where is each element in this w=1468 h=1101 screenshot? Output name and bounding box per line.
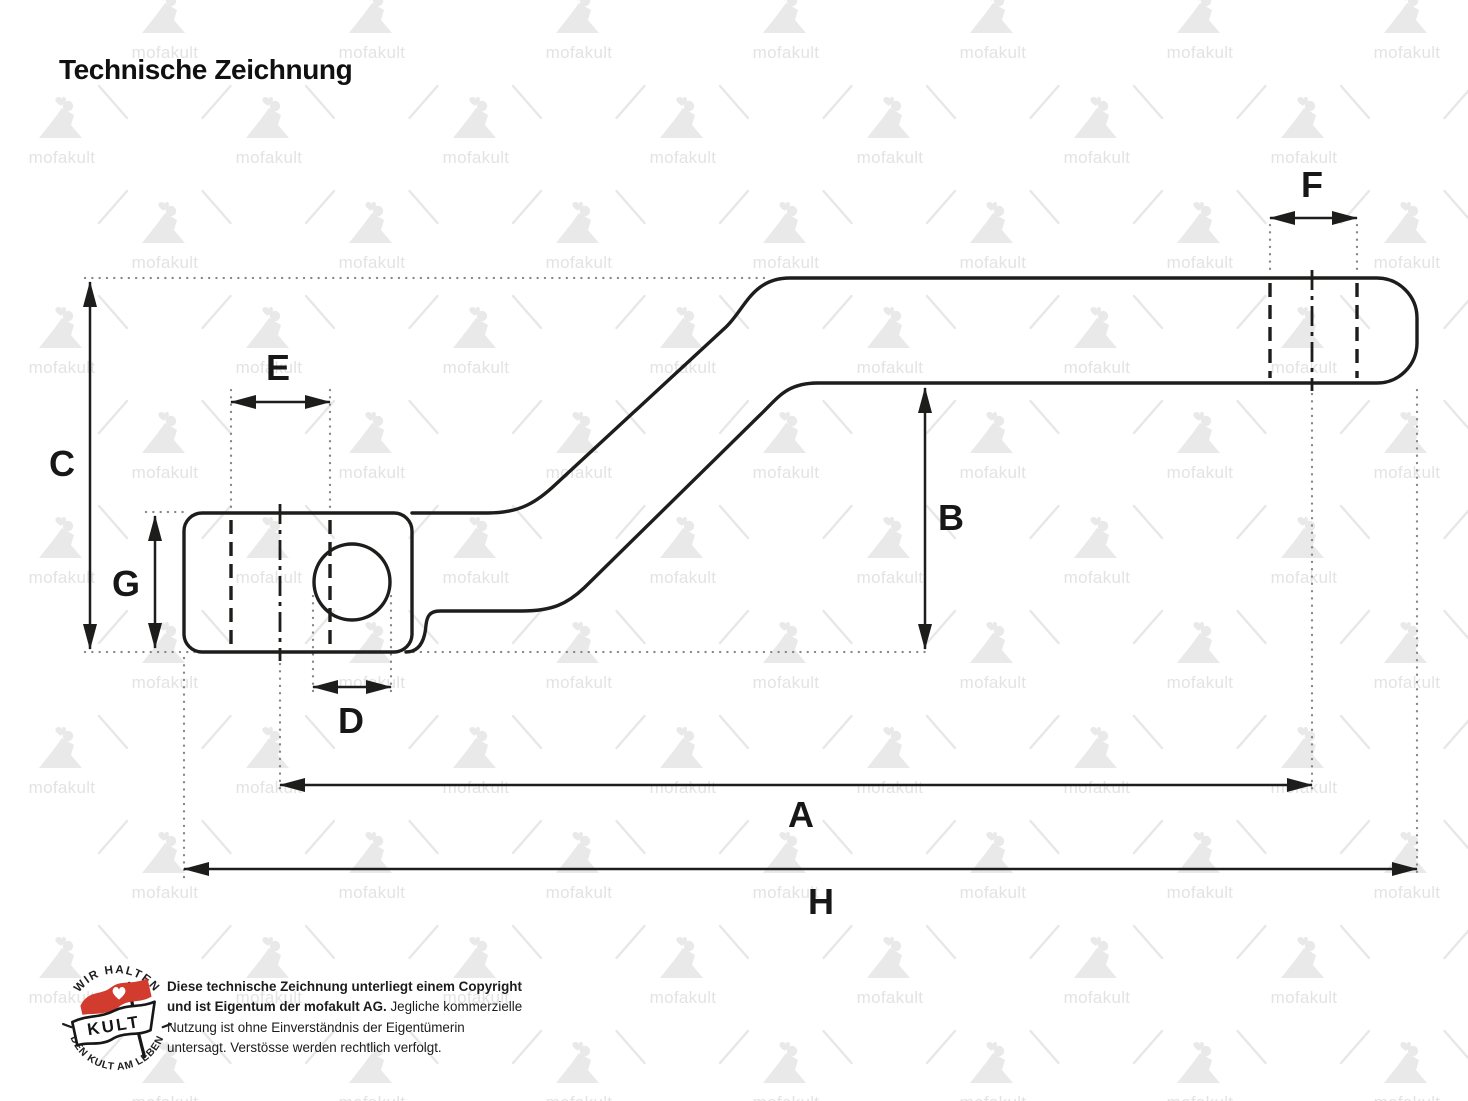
watermark-slash bbox=[1238, 611, 1266, 643]
watermark-text: mofakult bbox=[1271, 778, 1338, 797]
watermark-glyph bbox=[39, 517, 82, 558]
watermark-slash bbox=[1238, 191, 1266, 223]
watermark-text: mofakult bbox=[546, 463, 613, 482]
watermark-slash bbox=[513, 611, 541, 643]
watermark-slash bbox=[203, 506, 231, 538]
watermark-slash bbox=[1341, 401, 1369, 433]
watermark-glyph bbox=[39, 97, 82, 138]
watermark-text: mofakult bbox=[546, 43, 613, 62]
watermark-glyph bbox=[246, 937, 289, 978]
watermark-slash bbox=[1031, 191, 1059, 223]
watermark-text: mofakult bbox=[1167, 883, 1234, 902]
watermark-slash bbox=[99, 86, 127, 118]
watermark-text: mofakult bbox=[1374, 1093, 1441, 1101]
watermark-glyph bbox=[763, 622, 806, 663]
watermark-slash bbox=[1031, 1031, 1059, 1063]
watermark-glyph bbox=[970, 622, 1013, 663]
watermark-slash bbox=[306, 926, 334, 958]
watermark-slash bbox=[1445, 1031, 1468, 1063]
clamp-bolt-hole bbox=[314, 544, 390, 620]
watermark-glyph bbox=[970, 832, 1013, 873]
watermark-slash bbox=[203, 611, 231, 643]
watermark-glyph bbox=[1074, 937, 1117, 978]
watermark-slash bbox=[306, 821, 334, 853]
watermark-glyph bbox=[1281, 517, 1324, 558]
watermark-text: mofakult bbox=[650, 568, 717, 587]
watermark-slash bbox=[1445, 86, 1468, 118]
dimension-label-e: E bbox=[266, 347, 290, 388]
watermark-slash bbox=[513, 821, 541, 853]
watermark-glyph bbox=[1177, 832, 1220, 873]
watermark-slash bbox=[1341, 611, 1369, 643]
watermark-slash bbox=[927, 611, 955, 643]
watermark-text: mofakult bbox=[650, 148, 717, 167]
watermark-glyph bbox=[1281, 727, 1324, 768]
watermark-slash bbox=[1238, 506, 1266, 538]
watermark-slash bbox=[1031, 926, 1059, 958]
watermark-slash bbox=[824, 611, 852, 643]
watermark-slash bbox=[513, 401, 541, 433]
watermark-text: mofakult bbox=[1167, 253, 1234, 272]
watermark-glyph bbox=[1177, 1042, 1220, 1083]
watermark-slash bbox=[1134, 191, 1162, 223]
watermark-text: mofakult bbox=[29, 148, 96, 167]
watermark-slash bbox=[1445, 296, 1468, 328]
page-title: Technische Zeichnung bbox=[59, 54, 352, 86]
watermark-slash bbox=[513, 926, 541, 958]
watermark-glyph bbox=[453, 727, 496, 768]
watermark-slash bbox=[513, 86, 541, 118]
watermark-glyph bbox=[1074, 97, 1117, 138]
watermark-glyph bbox=[246, 727, 289, 768]
watermark-slash bbox=[99, 821, 127, 853]
watermark-text: mofakult bbox=[857, 568, 924, 587]
watermark-slash bbox=[99, 716, 127, 748]
watermark-slash bbox=[203, 716, 231, 748]
watermark-text: mofakult bbox=[546, 673, 613, 692]
watermark-slash bbox=[1445, 506, 1468, 538]
watermark-glyph bbox=[1384, 202, 1427, 243]
watermark-glyph bbox=[453, 517, 496, 558]
watermark-glyph bbox=[867, 517, 910, 558]
watermark-slash bbox=[1134, 1031, 1162, 1063]
dimension-label-f: F bbox=[1301, 164, 1323, 205]
watermark-slash bbox=[720, 191, 748, 223]
watermark-glyph bbox=[763, 412, 806, 453]
watermark-text: mofakult bbox=[339, 883, 406, 902]
watermark-text: mofakult bbox=[753, 43, 820, 62]
watermark-slash bbox=[1238, 926, 1266, 958]
watermark-slash bbox=[824, 296, 852, 328]
watermark-glyph bbox=[1177, 0, 1220, 33]
watermark-glyph bbox=[970, 412, 1013, 453]
watermark-slash bbox=[99, 191, 127, 223]
watermark-slash bbox=[824, 716, 852, 748]
watermark-text: mofakult bbox=[1374, 883, 1441, 902]
watermark-slash bbox=[1238, 821, 1266, 853]
watermark-slash bbox=[617, 296, 645, 328]
watermark-text: mofakult bbox=[960, 43, 1027, 62]
watermark-slash bbox=[513, 716, 541, 748]
watermark-glyph bbox=[349, 202, 392, 243]
watermark-slash bbox=[1445, 191, 1468, 223]
watermark-glyph bbox=[349, 0, 392, 33]
watermark-slash bbox=[1238, 716, 1266, 748]
watermark-text: mofakult bbox=[29, 358, 96, 377]
watermark-glyph bbox=[1384, 1042, 1427, 1083]
watermark-glyph bbox=[349, 412, 392, 453]
watermark-glyph bbox=[1074, 517, 1117, 558]
watermark-slash bbox=[927, 926, 955, 958]
watermark-text: mofakult bbox=[960, 463, 1027, 482]
dimension-label-b: B bbox=[938, 497, 964, 538]
watermark-slash bbox=[720, 296, 748, 328]
watermark-slash bbox=[1445, 716, 1468, 748]
watermark-text: mofakult bbox=[132, 673, 199, 692]
watermark-text: mofakult bbox=[1064, 148, 1131, 167]
watermark-glyph bbox=[1281, 937, 1324, 978]
watermark-glyph bbox=[556, 0, 599, 33]
watermark-slash bbox=[1031, 716, 1059, 748]
watermark-glyph bbox=[660, 307, 703, 348]
watermark-slash bbox=[410, 821, 438, 853]
watermark-slash bbox=[720, 401, 748, 433]
watermark-slash bbox=[410, 191, 438, 223]
watermark-text: mofakult bbox=[857, 988, 924, 1007]
watermark-glyph bbox=[1384, 0, 1427, 33]
watermark-text: mofakult bbox=[1064, 358, 1131, 377]
watermark-glyph bbox=[1281, 97, 1324, 138]
watermark-text: mofakult bbox=[1374, 43, 1441, 62]
watermark-glyph bbox=[970, 1042, 1013, 1083]
watermark-text: mofakult bbox=[1374, 253, 1441, 272]
watermark-slash bbox=[513, 296, 541, 328]
watermark-slash bbox=[824, 191, 852, 223]
watermark-slash bbox=[927, 716, 955, 748]
watermark-glyph bbox=[246, 97, 289, 138]
watermark-glyph bbox=[39, 727, 82, 768]
watermark-slash bbox=[617, 86, 645, 118]
watermark-glyph bbox=[763, 832, 806, 873]
watermark-slash bbox=[203, 401, 231, 433]
watermark-slash bbox=[99, 611, 127, 643]
watermark-slash bbox=[1134, 506, 1162, 538]
watermark-text: mofakult bbox=[236, 148, 303, 167]
technical-drawing-page: mofakultmofakultmofakultmofakultmofakult… bbox=[0, 0, 1468, 1101]
watermark-text: mofakult bbox=[960, 673, 1027, 692]
watermark-text: mofakult bbox=[132, 253, 199, 272]
watermark-slash bbox=[1031, 86, 1059, 118]
watermark-slash bbox=[824, 401, 852, 433]
watermark-text: mofakult bbox=[857, 358, 924, 377]
watermark-slash bbox=[99, 926, 127, 958]
watermark-glyph bbox=[453, 937, 496, 978]
watermark-glyph bbox=[556, 412, 599, 453]
watermark-text: mofakult bbox=[1064, 568, 1131, 587]
watermark-slash bbox=[203, 821, 231, 853]
watermark-glyph bbox=[660, 517, 703, 558]
dimension-label-c: C bbox=[49, 443, 75, 484]
watermark-slash bbox=[513, 506, 541, 538]
watermark-slash bbox=[1341, 716, 1369, 748]
watermark-glyph bbox=[556, 1042, 599, 1083]
watermark-slash bbox=[306, 86, 334, 118]
watermark-glyph bbox=[349, 832, 392, 873]
watermark-glyph bbox=[1177, 412, 1220, 453]
watermark-slash bbox=[306, 716, 334, 748]
watermark-slash bbox=[1341, 821, 1369, 853]
watermark-slash bbox=[1134, 821, 1162, 853]
watermark-text: mofakult bbox=[650, 778, 717, 797]
watermark-slash bbox=[927, 191, 955, 223]
watermark-slash bbox=[1238, 1031, 1266, 1063]
watermark-slash bbox=[1031, 821, 1059, 853]
watermark-text: mofakult bbox=[443, 358, 510, 377]
watermark-slash bbox=[1445, 926, 1468, 958]
copyright-notice: Diese technische Zeichnung unterliegt ei… bbox=[167, 977, 525, 1059]
watermark-slash bbox=[927, 1031, 955, 1063]
watermark-glyph bbox=[867, 307, 910, 348]
watermark-text: mofakult bbox=[236, 778, 303, 797]
watermark-slash bbox=[720, 716, 748, 748]
watermark-slash bbox=[927, 86, 955, 118]
watermark-glyph bbox=[1384, 412, 1427, 453]
watermark-slash bbox=[410, 86, 438, 118]
watermark-slash bbox=[1031, 611, 1059, 643]
watermark-slash bbox=[1134, 926, 1162, 958]
watermark-slash bbox=[410, 401, 438, 433]
watermark-text: mofakult bbox=[546, 883, 613, 902]
dimension-f: F bbox=[1270, 164, 1357, 218]
watermark-glyph bbox=[246, 307, 289, 348]
watermark-text: mofakult bbox=[29, 568, 96, 587]
watermark-glyph bbox=[763, 0, 806, 33]
watermark-slash bbox=[99, 401, 127, 433]
watermark-text: mofakult bbox=[546, 253, 613, 272]
watermark-text: mofakult bbox=[1374, 673, 1441, 692]
watermark-slash bbox=[824, 1031, 852, 1063]
watermark-slash bbox=[617, 191, 645, 223]
watermark-text: mofakult bbox=[236, 568, 303, 587]
watermark-glyph bbox=[142, 412, 185, 453]
watermark-glyph bbox=[142, 622, 185, 663]
watermark-slash bbox=[617, 821, 645, 853]
watermark-glyph bbox=[556, 832, 599, 873]
watermark-text: mofakult bbox=[339, 253, 406, 272]
watermark-text: mofakult bbox=[857, 148, 924, 167]
watermark-slash bbox=[720, 1031, 748, 1063]
watermark-slash bbox=[1031, 506, 1059, 538]
watermark-text: mofakult bbox=[132, 463, 199, 482]
watermark-slash bbox=[1134, 296, 1162, 328]
watermark-text: mofakult bbox=[443, 148, 510, 167]
watermark-slash bbox=[203, 191, 231, 223]
watermark-glyph bbox=[660, 727, 703, 768]
watermark-text: mofakult bbox=[960, 253, 1027, 272]
watermark-text: mofakult bbox=[443, 568, 510, 587]
watermark-text: mofakult bbox=[339, 673, 406, 692]
watermark-slash bbox=[824, 86, 852, 118]
watermark-text: mofakult bbox=[132, 1093, 199, 1101]
watermark-slash bbox=[927, 296, 955, 328]
watermark-glyph bbox=[1074, 727, 1117, 768]
watermark-slash bbox=[927, 821, 955, 853]
watermark-slash bbox=[1341, 86, 1369, 118]
watermark-text: mofakult bbox=[753, 253, 820, 272]
watermark-text: mofakult bbox=[1167, 43, 1234, 62]
watermark-glyph bbox=[246, 517, 289, 558]
watermark-slash bbox=[1134, 86, 1162, 118]
watermark-text: mofakult bbox=[1167, 463, 1234, 482]
watermark-text: mofakult bbox=[339, 463, 406, 482]
watermark-glyph bbox=[763, 202, 806, 243]
dimension-label-g: G bbox=[112, 563, 140, 604]
watermark-slash bbox=[824, 506, 852, 538]
dimension-label-h: H bbox=[808, 881, 834, 922]
dimension-label-a: A bbox=[788, 794, 814, 835]
watermark-slash bbox=[1031, 296, 1059, 328]
watermark-text: mofakult bbox=[1271, 358, 1338, 377]
watermark-glyph bbox=[1074, 307, 1117, 348]
watermark-text: mofakult bbox=[1374, 463, 1441, 482]
watermark-slash bbox=[1134, 611, 1162, 643]
watermark-slash bbox=[1031, 401, 1059, 433]
watermark-slash bbox=[203, 86, 231, 118]
watermark-slash bbox=[410, 296, 438, 328]
watermark-slash bbox=[99, 296, 127, 328]
watermark-glyph bbox=[39, 307, 82, 348]
watermark-text: mofakult bbox=[546, 1093, 613, 1101]
watermark-glyph bbox=[349, 622, 392, 663]
watermark-glyph bbox=[867, 937, 910, 978]
dimension-g: G bbox=[112, 516, 155, 648]
watermark-glyph bbox=[1177, 202, 1220, 243]
watermark-glyph bbox=[453, 97, 496, 138]
watermark-text: mofakult bbox=[753, 673, 820, 692]
watermark-text: mofakult bbox=[29, 778, 96, 797]
watermark-text: mofakult bbox=[857, 778, 924, 797]
watermark-glyph bbox=[1177, 622, 1220, 663]
watermark-glyph bbox=[556, 202, 599, 243]
watermark-slash bbox=[1341, 506, 1369, 538]
watermark-slash bbox=[1445, 611, 1468, 643]
watermark-text: mofakult bbox=[650, 988, 717, 1007]
watermark-text: mofakult bbox=[443, 778, 510, 797]
watermark-slash bbox=[617, 1031, 645, 1063]
watermark-slash bbox=[410, 716, 438, 748]
watermark-slash bbox=[1238, 86, 1266, 118]
watermark-slash bbox=[720, 86, 748, 118]
watermark-slash bbox=[1238, 296, 1266, 328]
watermark-text: mofakult bbox=[960, 883, 1027, 902]
watermark-slash bbox=[1134, 716, 1162, 748]
watermark-glyph bbox=[142, 832, 185, 873]
watermark-slash bbox=[1341, 926, 1369, 958]
watermark-slash bbox=[720, 926, 748, 958]
watermark-glyph bbox=[142, 0, 185, 33]
watermark-slash bbox=[1341, 296, 1369, 328]
drawing-canvas: mofakultmofakultmofakultmofakultmofakult… bbox=[0, 0, 1468, 1101]
badge-left-dash bbox=[63, 1024, 71, 1027]
watermark-glyph bbox=[970, 202, 1013, 243]
watermark-text: mofakult bbox=[1167, 673, 1234, 692]
watermark-glyph bbox=[1281, 307, 1324, 348]
watermark-slash bbox=[410, 926, 438, 958]
watermark-slash bbox=[1238, 401, 1266, 433]
watermark-slash bbox=[99, 506, 127, 538]
watermark-text: mofakult bbox=[132, 883, 199, 902]
watermark-glyph bbox=[1384, 832, 1427, 873]
watermark-slash bbox=[1445, 821, 1468, 853]
watermark-slash bbox=[1445, 401, 1468, 433]
dimension-label-d: D bbox=[338, 700, 364, 741]
watermark-slash bbox=[720, 611, 748, 643]
watermark-slash bbox=[1341, 1031, 1369, 1063]
watermark-text: mofakult bbox=[1271, 988, 1338, 1007]
watermark-glyph bbox=[660, 937, 703, 978]
watermark-text: mofakult bbox=[1271, 568, 1338, 587]
watermark-slash bbox=[306, 296, 334, 328]
watermark-text: mofakult bbox=[339, 1093, 406, 1101]
watermark-slash bbox=[617, 926, 645, 958]
watermark-text: mofakult bbox=[753, 1093, 820, 1101]
watermark-text: mofakult bbox=[960, 1093, 1027, 1101]
watermark-glyph bbox=[142, 202, 185, 243]
watermark-slash bbox=[513, 191, 541, 223]
watermark-text: mofakult bbox=[1167, 1093, 1234, 1101]
watermark-text: mofakult bbox=[1064, 988, 1131, 1007]
watermark-slash bbox=[306, 191, 334, 223]
watermark-slash bbox=[720, 821, 748, 853]
watermark-slash bbox=[927, 401, 955, 433]
watermark-slash bbox=[824, 821, 852, 853]
watermark-glyph bbox=[1384, 622, 1427, 663]
watermark-slash bbox=[203, 296, 231, 328]
watermark-glyph bbox=[970, 0, 1013, 33]
kult-badge: WIR HALTEN DEN KULT AM LEBEN KULT bbox=[56, 959, 178, 1081]
dimension-d: D bbox=[313, 687, 391, 741]
watermark-slash bbox=[203, 926, 231, 958]
watermark-text: mofakult bbox=[1064, 778, 1131, 797]
watermark-slash bbox=[617, 716, 645, 748]
watermark-glyph bbox=[453, 307, 496, 348]
watermark-layer: mofakultmofakultmofakultmofakultmofakult… bbox=[29, 0, 1468, 1101]
watermark-text: mofakult bbox=[753, 463, 820, 482]
watermark-slash bbox=[617, 611, 645, 643]
watermark-glyph bbox=[660, 97, 703, 138]
watermark-glyph bbox=[867, 97, 910, 138]
watermark-glyph bbox=[556, 622, 599, 663]
watermark-slash bbox=[1134, 401, 1162, 433]
watermark-glyph bbox=[867, 727, 910, 768]
watermark-glyph bbox=[763, 1042, 806, 1083]
watermark-slash bbox=[824, 926, 852, 958]
watermark-slash bbox=[720, 506, 748, 538]
